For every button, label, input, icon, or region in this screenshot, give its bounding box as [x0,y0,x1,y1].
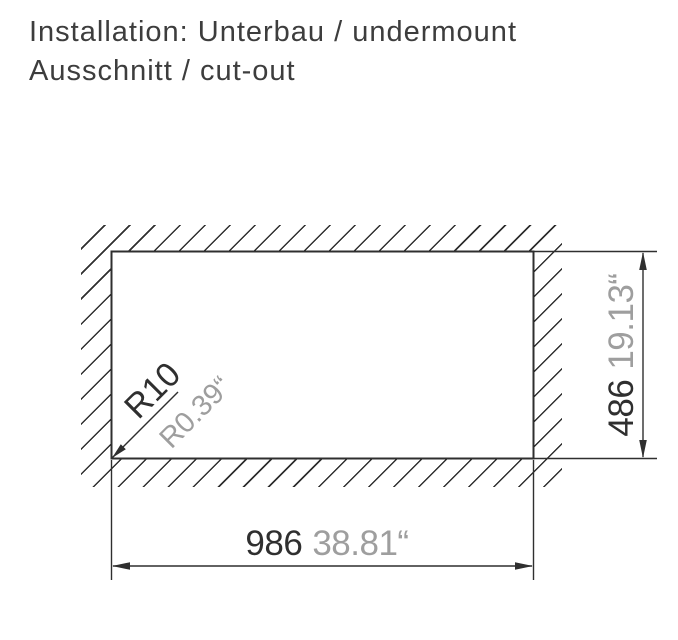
arrowhead-up-icon [639,252,647,270]
width-dimension-label: 98638.81“ [245,524,408,564]
width-mm-value: 986 [245,524,302,563]
arrowhead-down-icon [639,440,647,458]
height-dimension-label: 48619.13“ [602,273,642,436]
height-inch-value: 19.13“ [602,273,641,369]
arrowhead-left-icon [112,562,130,570]
page-root: Installation: Unterbau / undermount Auss… [0,0,678,640]
arrowhead-right-icon [515,562,533,570]
height-mm-value: 486 [602,380,641,437]
width-inch-value: 38.81“ [312,524,408,563]
